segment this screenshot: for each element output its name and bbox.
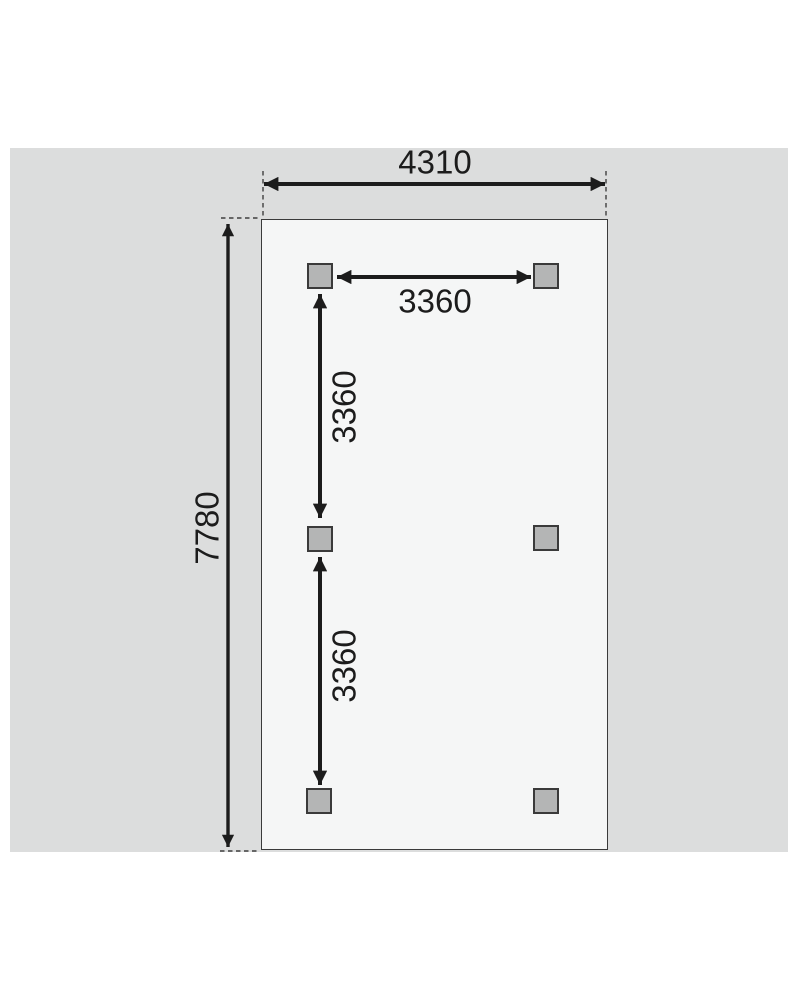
post-top-right — [533, 263, 559, 289]
post-bottom-right — [533, 788, 559, 814]
post-spacing-top-label: 3360 — [398, 285, 471, 318]
post-spacing-upper-label: 3360 — [328, 370, 361, 443]
post-bottom-left — [306, 788, 332, 814]
post-top-left — [307, 263, 333, 289]
width-dimension-label: 4310 — [398, 146, 471, 179]
post-middle-right — [533, 525, 559, 551]
post-spacing-lower-label: 3360 — [328, 629, 361, 702]
post-middle-left — [307, 526, 333, 552]
depth-dimension-label: 7780 — [191, 491, 224, 564]
diagram-stage: 4310 7780 3360 3360 3360 — [0, 0, 800, 999]
